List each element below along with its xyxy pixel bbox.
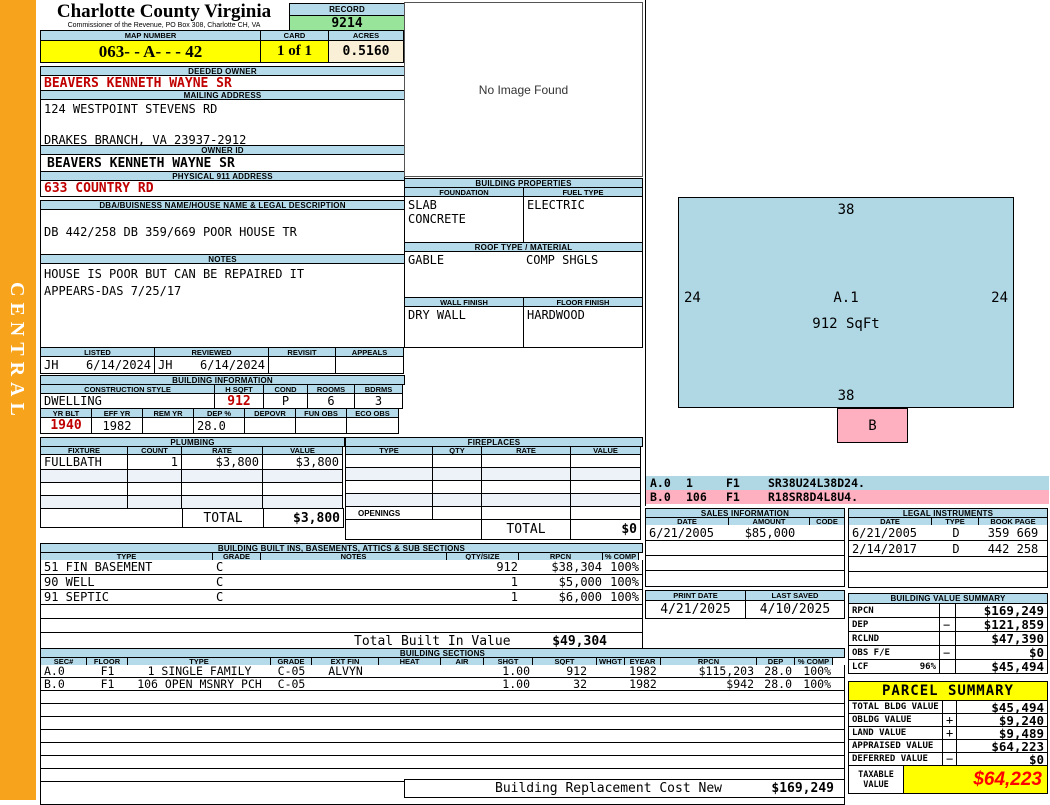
vs-label: OBS F/E: [852, 648, 890, 658]
ps-label-cell: APPRAISED VALUE: [848, 739, 943, 753]
empty-cell: [262, 495, 343, 509]
code-string: SR38U24L38D24.: [768, 476, 865, 490]
fireplaces-total-row: TOTAL $0: [345, 519, 643, 540]
taxable-row: TAXABLE VALUE $64,223: [848, 765, 1048, 794]
foundation-line2: CONCRETE: [408, 212, 466, 226]
empty-cell: [432, 506, 482, 520]
empty-cell: [345, 480, 433, 494]
bi-qty: 912: [448, 560, 521, 574]
ps-label-cell: DEFERRED VALUE: [848, 752, 943, 766]
bi-type: 90 WELL: [41, 575, 213, 589]
revisit-value: [268, 356, 336, 374]
code-floor: F1: [726, 490, 768, 504]
bi-grade: C: [213, 560, 262, 574]
replacement-cost-row: Building Replacement Cost New $169,249: [404, 779, 845, 798]
empty-cell: [481, 467, 571, 481]
county-header: Charlotte County Virginia Commissioner o…: [40, 1, 288, 30]
fuel-value: ELECTRIC: [523, 196, 643, 243]
bs-eyear: 1982: [625, 678, 661, 690]
parcel-row: LAND VALUE + $9,489: [848, 726, 1048, 740]
ps-sign: −: [942, 752, 957, 766]
listed-by: JH: [44, 358, 58, 372]
bi-grade: C: [213, 590, 262, 604]
ps-label: APPRAISED VALUE: [852, 741, 933, 751]
parcel-row: OBLDG VALUE + $9,240: [848, 713, 1048, 727]
bi-notes: [262, 575, 448, 589]
vs-value: $169,249: [955, 603, 1048, 618]
listed-date: 6/14/2024: [86, 358, 151, 372]
empty-cell: [481, 454, 571, 468]
parcel-row: TOTAL BLDG VALUE $45,494: [848, 700, 1048, 714]
listed-value: JH 6/14/2024: [40, 356, 155, 374]
sketch-dim-top: 38: [679, 202, 1013, 218]
empty-cell: [40, 469, 128, 483]
sketch-dim-right: 24: [991, 290, 1008, 306]
empty-cell: [181, 482, 263, 496]
empty-cell: [570, 493, 641, 507]
empty-cell: [127, 495, 182, 509]
legal-type: D: [933, 541, 979, 556]
empty-row: [646, 556, 844, 571]
empty-row: [646, 571, 844, 586]
depovr-value: [244, 417, 296, 434]
ps-label-cell: LAND VALUE: [848, 726, 943, 740]
empty-cell: [262, 482, 343, 496]
empty-cell: [481, 506, 571, 520]
bs-rpcn: $115,203: [661, 665, 757, 677]
value-summary-body: RPCN $169,249 DEP − $121,859 RCLND $47,3…: [848, 603, 1048, 674]
map-number-value: 063- - A- - - 42: [40, 40, 261, 63]
notes-value: HOUSE IS POOR BUT CAN BE REPAIRED IT APP…: [40, 263, 405, 348]
sale-date: 6/21/2005: [646, 525, 730, 540]
code-sec: B.0: [646, 490, 686, 504]
bs-heat: [379, 678, 441, 690]
vs-value: $121,859: [955, 617, 1048, 632]
bs-dep: 28.0: [757, 665, 795, 677]
sketch-dim-bottom: 38: [679, 388, 1013, 404]
notes-line1: HOUSE IS POOR BUT CAN BE REPAIRED IT: [44, 267, 304, 281]
empty-cell: [345, 454, 433, 468]
foundation-line1: SLAB: [408, 198, 437, 212]
empty-cell: [570, 467, 641, 481]
empty-cell: [570, 480, 641, 494]
bs-whgt: [597, 665, 625, 677]
parcel-summary-title: PARCEL SUMMARY: [848, 681, 1048, 701]
construction-style-value: DWELLING: [40, 393, 215, 409]
vs-value: $47,390: [955, 631, 1048, 646]
property-record-card: { "district": "CENTRAL", "header": { "co…: [0, 0, 1050, 800]
empty-cell: [127, 482, 182, 496]
ps-label: DEFERRED VALUE: [852, 754, 928, 764]
mailing-address-value: 124 WESTPOINT STEVENS RD DRAKES BRANCH, …: [40, 99, 405, 146]
legal-type: D: [933, 525, 979, 540]
empty-row: [41, 730, 844, 743]
bi-rpcn: $5,000: [521, 575, 605, 589]
bi-comp: 100%: [605, 560, 642, 574]
sketch-panel: 38 24 A.1 912 SqFt 24 38 B A.0 1 F1 SR38…: [645, 0, 1048, 506]
vs-label-cell: OBS F/E: [848, 645, 940, 660]
owner-id-value: BEAVERS KENNETH WAYNE SR: [40, 154, 405, 172]
plumbing-rate: $3,800: [181, 454, 263, 470]
ecoobs-value: [346, 417, 399, 434]
bs-whgt: [597, 678, 625, 690]
floor-finish-value: HARDWOOD: [523, 306, 643, 348]
legal-row: 2/14/2017 D 442 258: [849, 541, 1047, 557]
sales-row: 6/21/2005 $85,000: [646, 525, 844, 541]
vs-value: $45,494: [955, 659, 1048, 674]
plumbing-total-value: $3,800: [263, 508, 344, 528]
ps-value: $45,494: [956, 700, 1048, 714]
plumbing-empty-row: [40, 469, 345, 483]
dep-value: 28.0: [193, 417, 245, 434]
value-summary-row: RPCN $169,249: [848, 603, 1048, 618]
building-info-values2: 1940 1982 28.0: [40, 417, 405, 434]
vs-label: DEP: [852, 620, 868, 630]
bs-air: [441, 665, 484, 677]
taxable-label-line1: TAXABLE: [858, 770, 894, 780]
photo-placeholder: No Image Found: [404, 2, 643, 177]
empty-cell: [40, 482, 128, 496]
bi-comp: 100%: [605, 575, 642, 589]
ps-label: TOTAL BLDG VALUE: [852, 702, 939, 712]
acres-value: 0.5160: [328, 40, 404, 63]
plumbing-empty-row: [40, 495, 345, 509]
code-floor: F1: [726, 476, 768, 490]
roof-material-value: COMP SHGLS: [523, 251, 643, 298]
legal-body: 6/21/2005 D 359 669 2/14/2017 D 442 258: [848, 525, 1048, 588]
built-ins-empty-row: [41, 619, 642, 633]
bi-notes: [262, 560, 448, 574]
bs-floor: F1: [87, 665, 128, 677]
replacement-cost-label: Building Replacement Cost New: [495, 781, 722, 796]
building-section-row: B.0 F1 106 OPEN MSNRY PCH C-05 1.00 32 1…: [41, 678, 844, 691]
foundation-value: SLAB CONCRETE: [404, 196, 524, 243]
built-ins-body: 51 FIN BASEMENT C 912 $38,304 100% 90 WE…: [40, 560, 643, 651]
ps-sign: +: [942, 726, 957, 740]
empty-row: [849, 557, 1047, 572]
value-summary-row: LCF 96% $45,494: [848, 659, 1048, 674]
bi-qty: 1: [448, 590, 521, 604]
rooms-value: 6: [307, 393, 355, 409]
plumbing-fixture: FULLBATH: [40, 454, 128, 470]
ps-sign: [942, 739, 957, 753]
empty-row: [41, 717, 844, 730]
last-saved-value: 4/10/2025: [745, 600, 845, 619]
empty-cell: [181, 469, 263, 483]
review-values: JH 6/14/2024 JH 6/14/2024: [40, 356, 405, 374]
empty-cell: [345, 519, 482, 540]
reviewed-date: 6/14/2024: [200, 358, 265, 372]
empty-cell: [40, 495, 128, 509]
value-summary-row: RCLND $47,390: [848, 631, 1048, 646]
sketch-area-b: B: [837, 408, 908, 443]
bi-grade: C: [213, 575, 262, 589]
ps-label-cell: TOTAL BLDG VALUE: [848, 700, 943, 714]
vs-sign: −: [939, 617, 956, 632]
vs-sign: −: [939, 645, 956, 660]
built-ins-empty-row: [41, 605, 642, 619]
code-string: R18SR8D4L8U4.: [768, 490, 858, 504]
deeded-owner-value: BEAVERS KENNETH WAYNE SR: [40, 75, 405, 91]
ps-sign: +: [942, 713, 957, 727]
bs-sqft: 912: [533, 665, 597, 677]
vs-label-cell: RPCN: [848, 603, 940, 618]
empty-cell: [127, 469, 182, 483]
built-ins-row: 51 FIN BASEMENT C 912 $38,304 100%: [41, 560, 642, 575]
notes-line2: APPEARS-DAS 7/25/17: [44, 284, 181, 298]
vs-label-cell: DEP: [848, 617, 940, 632]
bs-dep: 28.0: [757, 678, 795, 690]
code-num: 1: [686, 476, 726, 490]
mailing-line1: 124 WESTPOINT STEVENS RD: [44, 102, 217, 116]
vs-label-cell: RCLND: [848, 631, 940, 646]
legal-row: 6/21/2005 D 359 669: [849, 525, 1047, 541]
sketch-section-label: A.1: [679, 290, 1013, 306]
fireplaces-empty-row: [345, 467, 643, 481]
empty-cell: [570, 506, 641, 520]
taxable-value: $64,223: [903, 765, 1048, 794]
plumbing-empty-row: [40, 482, 345, 496]
fireplaces-empty-row: [345, 493, 643, 507]
legal-bookpage: 359 669: [979, 525, 1047, 540]
bs-sqft: 32: [533, 678, 597, 690]
empty-row: [41, 743, 844, 756]
plumbing-total-label: TOTAL: [182, 508, 264, 528]
legal-description-value: DB 442/258 DB 359/669 POOR HOUSE TR: [40, 209, 405, 255]
empty-row: [646, 541, 844, 556]
empty-cell: [432, 493, 482, 507]
value-summary-row: DEP − $121,859: [848, 617, 1048, 632]
vs-label-cell: LCF 96%: [848, 659, 940, 674]
bdrms-value: 3: [354, 393, 403, 409]
ps-label: OBLDG VALUE: [852, 715, 912, 725]
effyr-value: 1982: [91, 417, 143, 434]
fireplaces-total-value: $0: [570, 519, 641, 540]
sketch-area-a: 38 24 A.1 912 SqFt 24 38: [678, 197, 1014, 408]
taxable-label-line2: VALUE: [863, 780, 889, 790]
bs-eyear: 1982: [625, 665, 661, 677]
bi-rpcn: $6,000: [521, 590, 605, 604]
empty-row: [41, 704, 844, 717]
ps-value: $9,489: [956, 726, 1048, 740]
bi-qty: 1: [448, 575, 521, 589]
legal-date: 2/14/2017: [849, 541, 933, 556]
funobs-value: [295, 417, 347, 434]
wall-finish-value: DRY WALL: [404, 306, 524, 348]
empty-row: [849, 572, 1047, 587]
bs-comp: 100%: [795, 678, 834, 690]
fireplaces-openings-row: OPENINGS: [345, 506, 643, 520]
sketch-porch-label: B: [868, 418, 876, 434]
card-value: 1 of 1: [260, 40, 329, 63]
empty-cell: [40, 508, 183, 528]
bs-air: [441, 678, 484, 690]
legal-date: 6/21/2005: [849, 525, 933, 540]
bs-sec: A.0: [41, 665, 87, 677]
bi-rpcn: $38,304: [521, 560, 605, 574]
fireplaces-empty-row: [345, 480, 643, 494]
plumbing-row: FULLBATH 1 $3,800 $3,800: [40, 454, 345, 470]
plumbing-count: 1: [127, 454, 182, 470]
replacement-cost-value: $169,249: [771, 781, 834, 796]
parcel-row: DEFERRED VALUE − $0: [848, 752, 1048, 766]
county-title: Charlotte County Virginia: [40, 1, 288, 23]
bs-extfin: ALVYN: [312, 665, 379, 677]
reviewed-value: JH 6/14/2024: [154, 356, 269, 374]
vs-value: $0: [955, 645, 1048, 660]
plumbing-value: $3,800: [262, 454, 343, 470]
empty-row: [41, 756, 844, 769]
ps-sign: [942, 700, 957, 714]
value-summary-row: OBS F/E − $0: [848, 645, 1048, 660]
legal-bookpage: 442 258: [979, 541, 1047, 556]
empty-cell: [481, 480, 571, 494]
bs-extfin: [312, 678, 379, 690]
code-num: 106: [686, 490, 726, 504]
empty-cell: [345, 467, 433, 481]
ps-value: $64,223: [956, 739, 1048, 753]
physical-address-value: 633 COUNTRY RD: [40, 180, 405, 197]
bi-type: 91 SEPTIC: [41, 590, 213, 604]
bs-comp: 100%: [795, 665, 834, 677]
vs-sign: [939, 659, 956, 674]
district-label: CENTRAL: [5, 282, 28, 422]
cond-value: P: [263, 393, 308, 409]
empty-cell: [570, 454, 641, 468]
empty-cell: [181, 495, 263, 509]
wall-floor-values: DRY WALL HARDWOOD: [404, 306, 643, 348]
bs-rpcn: $942: [661, 678, 757, 690]
bi-notes: [262, 590, 448, 604]
ps-value: $0: [956, 752, 1048, 766]
sketch-section-sqft: 912 SqFt: [679, 316, 1013, 332]
hsqft-value: 912: [214, 393, 264, 409]
bs-grade: C-05: [271, 665, 312, 677]
bs-floor: F1: [87, 678, 128, 690]
appeals-value: [335, 356, 404, 374]
roof-values: GABLE COMP SHGLS: [404, 251, 643, 298]
ps-value: $9,240: [956, 713, 1048, 727]
no-image-text: No Image Found: [479, 83, 568, 97]
parcel-row: APPRAISED VALUE $64,223: [848, 739, 1048, 753]
roof-type-value: GABLE: [404, 251, 524, 298]
print-saved-values: 4/21/2025 4/10/2025: [645, 600, 845, 619]
empty-cell: [432, 454, 482, 468]
empty-cell: [345, 493, 433, 507]
vs-sign: [939, 631, 956, 646]
taxable-label-cell: TAXABLE VALUE: [848, 765, 904, 794]
bs-shgt: 1.00: [484, 678, 533, 690]
empty-row: [41, 691, 844, 704]
building-info-values1: DWELLING 912 P 6 3: [40, 393, 405, 409]
remyr-value: [142, 417, 194, 434]
sales-body: 6/21/2005 $85,000: [645, 525, 845, 587]
county-subtitle: Commissioner of the Revenue, PO Box 308,…: [40, 22, 288, 29]
bs-sec: B.0: [41, 678, 87, 690]
print-date-value: 4/21/2025: [645, 600, 746, 619]
sketch-code-row-b: B.0 106 F1 R18SR8D4L8U4.: [646, 490, 1049, 504]
bs-grade: C-05: [271, 678, 312, 690]
map-card-acres-values: 063- - A- - - 42 1 of 1 0.5160: [40, 40, 405, 63]
empty-cell: [432, 467, 482, 481]
bi-type: 51 FIN BASEMENT: [41, 560, 213, 574]
ps-label-cell: OBLDG VALUE: [848, 713, 943, 727]
sale-amount: $85,000: [730, 525, 810, 540]
built-ins-row: 90 WELL C 1 $5,000 100%: [41, 575, 642, 590]
openings-label: OPENINGS: [345, 506, 433, 520]
vs-label: RPCN: [852, 606, 874, 616]
code-sec: A.0: [646, 476, 686, 490]
vs-sublabel: 96%: [920, 662, 936, 672]
sketch-code-row-a: A.0 1 F1 SR38U24L38D24.: [646, 476, 1049, 490]
bs-type: 1 SINGLE FAMILY: [128, 665, 271, 677]
empty-cell: [432, 480, 482, 494]
built-ins-row: 91 SEPTIC C 1 $6,000 100%: [41, 590, 642, 605]
empty-cell: [262, 469, 343, 483]
vs-sign: [939, 603, 956, 618]
plumbing-total-row: TOTAL $3,800: [40, 508, 345, 528]
bs-heat: [379, 665, 441, 677]
vs-label: RCLND: [852, 634, 879, 644]
parcel-summary: PARCEL SUMMARY TOTAL BLDG VALUE $45,494 …: [848, 681, 1048, 794]
record-box: RECORD 9214: [289, 3, 405, 32]
ps-label: LAND VALUE: [852, 728, 906, 738]
bs-shgt: 1.00: [484, 665, 533, 677]
fireplaces-total-label: TOTAL: [481, 519, 571, 540]
fireplaces-empty-row: [345, 454, 643, 468]
bi-comp: 100%: [605, 590, 642, 604]
building-section-row: A.0 F1 1 SINGLE FAMILY C-05 ALVYN 1.00 9…: [41, 665, 844, 678]
yrblt-value: 1940: [40, 417, 92, 434]
sale-code: [810, 525, 844, 540]
empty-cell: [481, 493, 571, 507]
reviewed-by: JH: [158, 358, 172, 372]
district-sidebar: CENTRAL: [0, 0, 36, 800]
bs-type: 106 OPEN MSNRY PCH: [128, 678, 271, 690]
foundation-fuel-values: SLAB CONCRETE ELECTRIC: [404, 196, 643, 243]
vs-label: LCF: [852, 662, 868, 672]
